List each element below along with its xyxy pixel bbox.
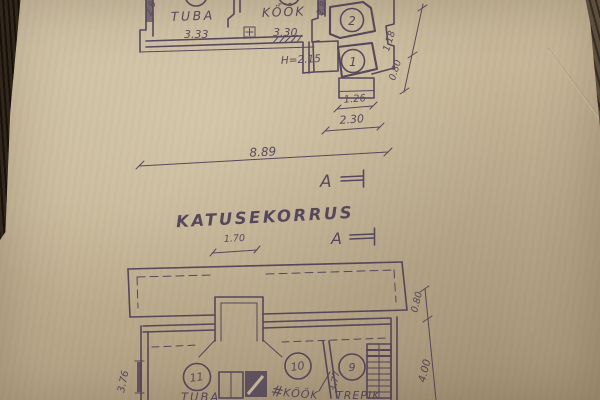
room-size-tuba: 3.33 — [184, 28, 209, 41]
sheet-middle: KATUSEKORRUS 1.70 A — [176, 203, 375, 256]
lower-plan: # 11 10 — [116, 262, 436, 400]
window-symbol — [135, 361, 144, 393]
room-circle-cutoff-tuba — [185, 0, 207, 6]
dim-diag-upper: 1.18 — [381, 29, 398, 53]
floorplan-photo: 2 1 TUBA 3.33 KÖÖK 3.30 H=2.15 2.8 2.8 — [0, 0, 600, 400]
room-number-9: 9 — [349, 361, 356, 374]
section-marker-lower: A — [330, 228, 375, 248]
dim-entry-width: 2.30 — [339, 112, 364, 127]
dim-170-line — [210, 246, 260, 256]
room-label-tuba: TUBA — [171, 7, 215, 24]
lower-plan-walls — [141, 317, 397, 400]
dim-total-width: 8.89 — [249, 144, 276, 159]
room-label-kook: KÖÖK — [262, 2, 306, 20]
section-cut-icon — [341, 170, 364, 187]
room-number-1: 1 — [349, 55, 357, 69]
dim-diag-lower: 0.80 — [387, 58, 404, 82]
room-label-kook: KÖÖK — [283, 386, 319, 400]
room-label-tuba: TUBA — [181, 390, 220, 400]
dim-porch-width: 1.26 — [343, 93, 366, 106]
room-number-10: 10 — [290, 359, 306, 374]
room-size-kook: 3.30 — [273, 26, 298, 39]
dim-left-vertical: 3.76 — [116, 370, 131, 394]
section-letter: A — [319, 172, 332, 192]
floorplan-drawing: 2 1 TUBA 3.33 KÖÖK 3.30 H=2.15 2.8 2.8 — [0, 0, 600, 400]
stove-icon — [244, 27, 255, 37]
paper-crease — [548, 48, 600, 120]
flue-block — [219, 371, 267, 398]
section-marker-upper: A — [319, 170, 364, 192]
dim-right-upper: 0.80 — [409, 291, 425, 314]
upper-plan: 2 1 TUBA 3.33 KÖÖK 3.30 H=2.15 2.8 2.8 — [136, 0, 427, 192]
section-cut-icon — [350, 228, 375, 245]
section-letter: A — [330, 229, 342, 248]
dim-170: 1.70 — [224, 233, 246, 245]
page-title: KATUSEKORRUS — [176, 203, 355, 231]
dim-right-total: 4.00 — [416, 358, 433, 384]
room-number-2: 2 — [348, 14, 356, 28]
height-note: H=2.15 — [281, 53, 322, 67]
room-label-trepik: TREPIK. — [336, 389, 385, 400]
room-number-11: 11 — [189, 370, 205, 385]
roof-band — [128, 262, 407, 317]
